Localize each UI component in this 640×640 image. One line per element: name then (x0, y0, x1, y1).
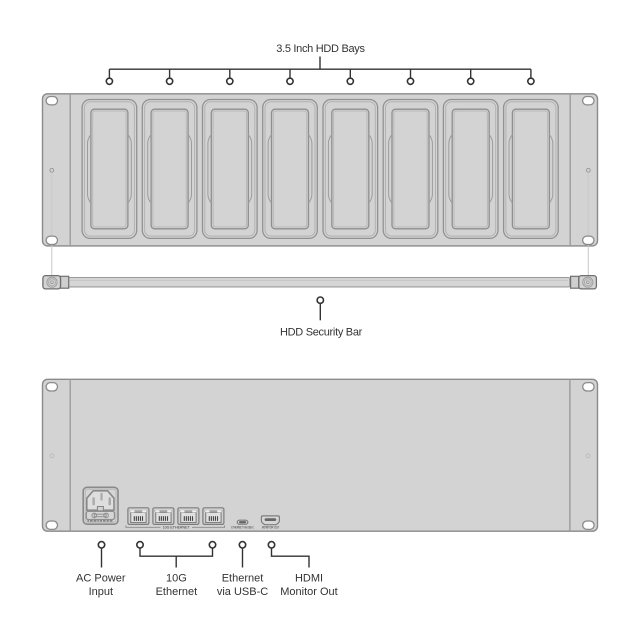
svg-text:ETHERNET VIA USB-C: ETHERNET VIA USB-C (231, 526, 254, 530)
svg-text:via USB-C: via USB-C (217, 586, 268, 598)
svg-text:Input: Input (89, 586, 113, 598)
svg-text:10G: 10G (166, 573, 187, 585)
svg-text:AC Power: AC Power (76, 573, 126, 585)
svg-text:3.5 Inch HDD Bays: 3.5 Inch HDD Bays (276, 43, 365, 55)
svg-text:HDD Security Bar: HDD Security Bar (280, 326, 363, 338)
svg-text:10G ETHERNET: 10G ETHERNET (163, 526, 190, 530)
svg-text:Ethernet: Ethernet (222, 573, 264, 585)
svg-text:MONITOR OUT: MONITOR OUT (262, 526, 280, 530)
svg-text:HDMI: HDMI (295, 573, 323, 585)
svg-text:Ethernet: Ethernet (156, 586, 198, 598)
svg-text:Monitor Out: Monitor Out (280, 586, 337, 598)
